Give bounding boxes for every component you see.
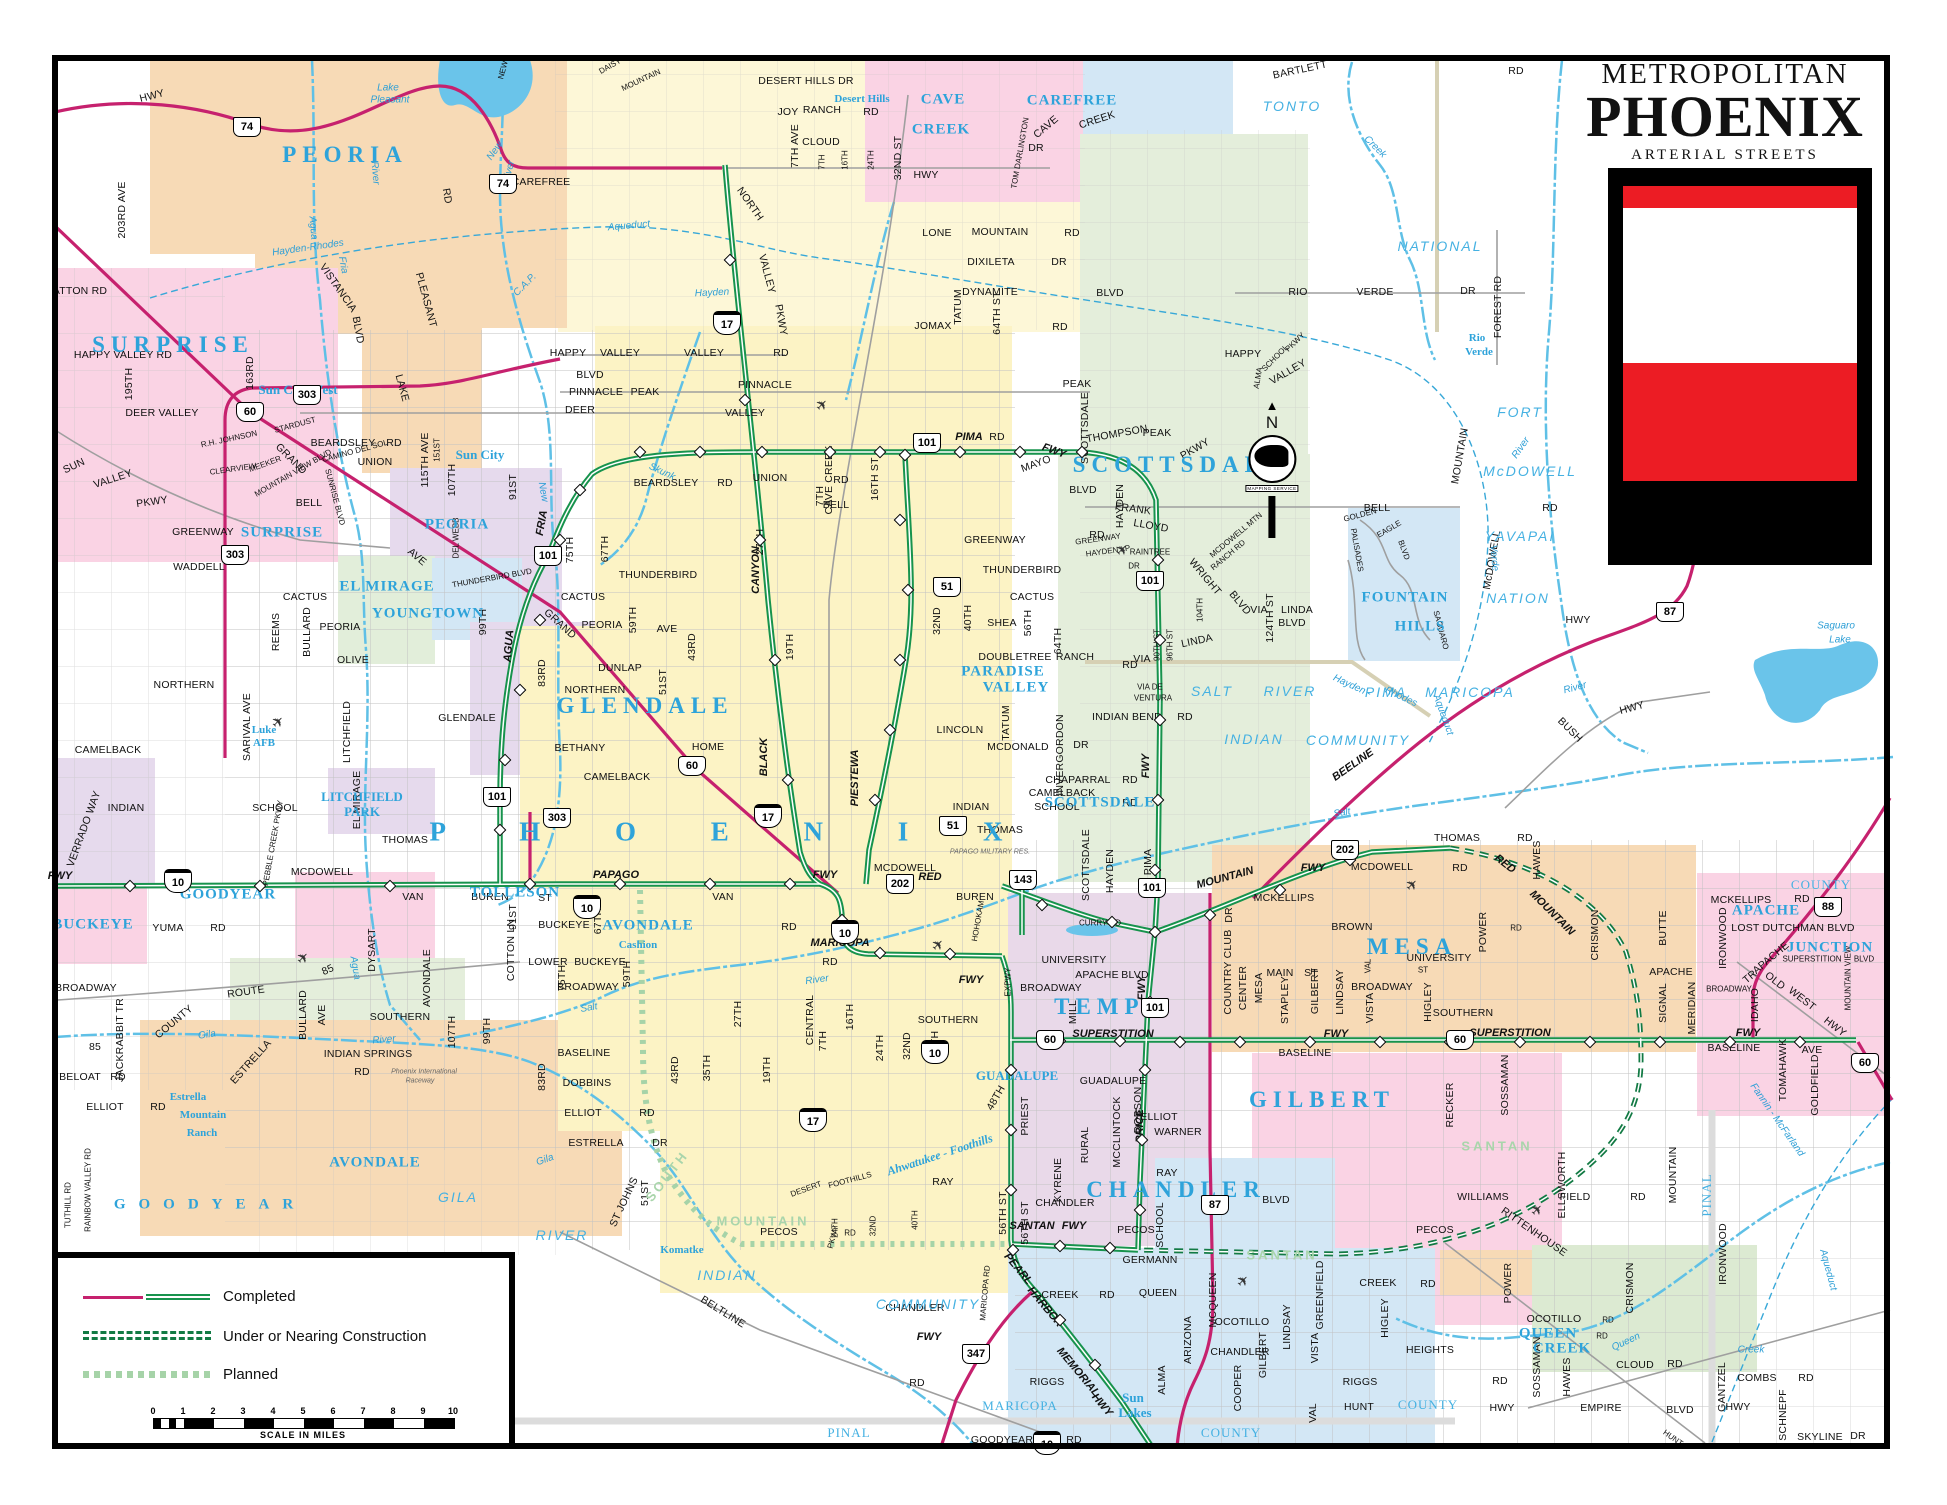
road-label: RD	[354, 1066, 370, 1078]
title-phoenix: PHOENIX	[1560, 91, 1890, 143]
road-label: 56TH	[1022, 610, 1034, 636]
road-label: TUTHILL RD	[64, 1182, 73, 1228]
road-label: 203RD AVE	[116, 181, 128, 238]
road-label: 151ST	[433, 438, 442, 462]
road-label: BLVD	[1069, 484, 1096, 496]
road-label: GILBERT	[1257, 1332, 1269, 1378]
route-shield-17: 17	[754, 804, 782, 828]
scale-tick: 8	[390, 1406, 395, 1416]
road-label: BELL	[296, 497, 323, 509]
road-label: CLOUD	[1616, 1359, 1654, 1371]
road-label: DYNAMITE	[962, 286, 1018, 298]
road-label: MCCLINTOCK	[1111, 1096, 1123, 1167]
road-label: GREENWAY	[172, 526, 234, 538]
road-label: MCQUEEN	[1207, 1272, 1219, 1327]
road-label: HWY	[1565, 614, 1590, 626]
road-label: ARIZONA	[1182, 1316, 1194, 1364]
freeway-label: FWY	[917, 1331, 941, 1343]
route-shield-10: 10	[831, 920, 859, 944]
road-label: Phoenix International	[391, 1069, 457, 1076]
road-label: VALLEY	[600, 347, 640, 359]
road-label: RD	[110, 1071, 126, 1083]
road-label: RD	[863, 106, 879, 118]
route-shield-101: 101	[1141, 998, 1169, 1018]
road-label: RD	[1122, 659, 1138, 671]
road-label: RD	[1177, 711, 1193, 723]
road-label: QUEEN	[1139, 1287, 1177, 1299]
road-label: LOST DUTCHMAN BLVD	[1731, 922, 1854, 934]
city-label: PARK	[344, 804, 380, 820]
road-label: VISTA	[1309, 1333, 1321, 1364]
road-label: BROWN	[1331, 921, 1372, 933]
route-shield-303: 303	[221, 545, 249, 565]
road-label: RD	[1602, 1316, 1614, 1325]
city-label: SCOTTSDALE	[1045, 795, 1156, 812]
road-label: EXPWY	[1004, 968, 1013, 997]
freeway-label: FWY	[1736, 1027, 1760, 1039]
road-label: APACHE	[1649, 966, 1693, 978]
road-label: ELLSWORTH	[1556, 1152, 1568, 1219]
region-label: COUNTY	[1791, 877, 1851, 893]
road-label: HWY	[1725, 1401, 1750, 1413]
road-label: TATUM	[1000, 705, 1012, 741]
scale-tick: 4	[270, 1406, 275, 1416]
road-label: DOUBLETREE	[978, 651, 1051, 663]
road-label: DR	[1460, 285, 1476, 297]
road-label: THUNDERBIRD	[619, 569, 698, 581]
road-label: PINNACLE	[738, 379, 792, 391]
road-label: RD	[1667, 1358, 1683, 1370]
road-label: WILLIAMS	[1457, 1191, 1509, 1203]
road-label: BROADWAY	[1020, 982, 1082, 994]
city-label: Lakes	[1118, 1405, 1151, 1421]
road-label: DUNLAP	[598, 662, 642, 674]
road-label: 16TH	[841, 150, 850, 170]
legend-under-construction-line	[83, 1331, 211, 1340]
road-label: VALLEY	[725, 407, 765, 419]
road-label: 104TH	[1196, 598, 1205, 622]
road-label: RD	[909, 1377, 925, 1389]
city-label: JUNCTION	[1787, 940, 1873, 957]
road-label: SHEA	[987, 617, 1016, 629]
road-label: STAPLEY	[1279, 976, 1291, 1024]
city-label: FOUNTAIN	[1362, 590, 1449, 607]
road-label: BUCKEYE	[574, 956, 626, 968]
road-label: VALLEY	[684, 347, 724, 359]
ad-white-area	[1623, 208, 1857, 363]
region-label: COMMUNITY	[876, 1296, 980, 1312]
city-label: MESA	[1367, 934, 1457, 960]
road-label: CLUB	[1222, 930, 1234, 959]
road-label: OCOTILLO	[1527, 1313, 1582, 1325]
scale-tick: 10	[448, 1406, 458, 1416]
road-label: GREENWAY	[964, 534, 1026, 546]
road-label: ST	[1418, 966, 1428, 975]
road-label: CLOUD	[802, 136, 840, 148]
scale-caption: SCALE IN MILES	[260, 1430, 346, 1440]
route-shield-51: 51	[939, 816, 967, 836]
road-label: DEER	[565, 404, 595, 416]
freeway-label: SUPERSTITION	[1469, 1027, 1550, 1039]
road-label: LINDSAY	[1334, 969, 1346, 1015]
city-label: AVONDALE	[329, 1155, 421, 1172]
scale-tick: 0	[150, 1406, 155, 1416]
road-label: 163RD	[244, 356, 256, 390]
region-label: TONTO	[1263, 98, 1322, 114]
route-shield-303: 303	[293, 385, 321, 405]
road-label: SCHOOL	[1154, 1202, 1166, 1248]
city-label: Cashion	[619, 939, 658, 951]
road-label: DR	[1223, 907, 1235, 923]
road-label: REEMS	[270, 613, 282, 651]
road-label: PINNACLE	[569, 386, 623, 398]
road-label: THOMAS	[382, 834, 428, 846]
road-label: VERDE	[1356, 286, 1393, 298]
city-label: Mountain	[180, 1109, 226, 1121]
freeway-label: RED	[918, 871, 941, 883]
road-label: 27TH	[732, 1001, 744, 1027]
road-label: 43RD	[686, 633, 698, 661]
title-subtitle: ARTERIAL STREETS	[1560, 147, 1890, 164]
road-label: 56TH ST	[997, 1191, 1009, 1234]
road-label: 32ND	[901, 1032, 913, 1060]
road-label: 64TH	[1052, 628, 1064, 654]
road-label: WADDELL	[173, 561, 225, 573]
freeway-label: FWY	[1324, 1028, 1348, 1040]
legend-under-construction-label: Under or Nearing Construction	[223, 1328, 426, 1345]
road-label: AVONDALE	[421, 949, 433, 1007]
road-label: BUREN	[956, 891, 994, 903]
scale-tick: 9	[420, 1406, 425, 1416]
road-label: NORTHERN	[154, 679, 215, 691]
road-label: 7TH	[817, 1031, 829, 1051]
road-label: DEER VALLEY	[125, 407, 198, 419]
road-label: CACTUS	[283, 591, 327, 603]
road-label: BROADWAY	[1351, 981, 1413, 993]
road-label: ELLIOT	[86, 1101, 123, 1113]
route-shield-10: 10	[1033, 1431, 1061, 1455]
road-label: HWY	[1489, 1402, 1514, 1414]
scale-tick: 6	[330, 1406, 335, 1416]
road-label: GERMANN	[1122, 1254, 1177, 1266]
road-label: HEIGHTS	[1406, 1344, 1454, 1356]
road-label: RAY	[932, 1176, 953, 1188]
road-label: UNION	[753, 472, 788, 484]
road-label: 107TH	[446, 1016, 458, 1049]
road-label: DR	[1073, 739, 1089, 751]
road-label: HAWES	[1531, 840, 1543, 879]
freeway-label: BLACK	[758, 738, 770, 777]
road-label: DR	[652, 1137, 668, 1149]
road-label: BULLARD	[297, 990, 309, 1040]
road-label: CAMELBACK	[75, 744, 142, 756]
road-label: HAWES	[1561, 1357, 1573, 1396]
road-label: DIXILETA	[967, 256, 1015, 268]
road-label: CRISMON	[1624, 1263, 1636, 1314]
road-label: PECOS	[1416, 1224, 1454, 1236]
road-label: IRONWOOD	[1717, 907, 1729, 969]
freeway-label: PIMA	[955, 431, 983, 443]
road-label: DESERT HILLS DR	[758, 75, 853, 87]
road-label: RD	[1052, 321, 1068, 333]
road-label: RAINTREE	[1130, 548, 1170, 557]
road-label: RD	[781, 921, 797, 933]
water-label: Lake	[1829, 635, 1851, 646]
city-label: HILLS	[1395, 619, 1446, 636]
route-shield-60: 60	[1036, 1030, 1064, 1050]
road-label: BLVD	[1278, 617, 1305, 629]
city-label: BUCKEYE	[52, 917, 133, 934]
region-label: SALT	[1191, 683, 1233, 699]
road-label: RD	[440, 187, 455, 204]
city-label: LITCHFIELD	[321, 789, 403, 805]
freeway-label: FWY	[813, 869, 837, 881]
route-shield-303: 303	[543, 808, 571, 828]
road-label: RD	[989, 431, 1005, 443]
road-label: LITCHFIELD	[341, 701, 353, 763]
city-label: VALLEY	[983, 680, 1050, 697]
road-label: HIGLEY	[1422, 982, 1434, 1022]
route-shield-10: 10	[921, 1040, 949, 1064]
region-label: MARICOPA	[982, 1398, 1057, 1414]
route-shield-60: 60	[1851, 1053, 1879, 1073]
road-label: THUNDERBIRD	[983, 564, 1062, 576]
city-label: SURPRISE	[241, 525, 323, 542]
road-label: SCHNEPF	[1777, 1389, 1789, 1441]
road-label: YUMA	[152, 922, 183, 934]
road-label: HAYDEN	[1104, 849, 1116, 893]
region-label: RIVER	[1264, 683, 1317, 699]
road-label: RD	[1064, 227, 1080, 239]
road-label: MOUNTAIN	[972, 226, 1029, 238]
road-label: EMPIRE	[1580, 1402, 1621, 1414]
region-label: YAVAPAI	[1485, 528, 1556, 544]
road-label: DR	[1850, 1430, 1866, 1442]
road-label: MCDOWELL	[1351, 861, 1413, 873]
scale-tick: 5	[300, 1406, 305, 1416]
road-label: VIA DE	[1137, 683, 1163, 692]
road-label: 24TH	[867, 150, 876, 170]
road-label: AVE	[657, 623, 678, 635]
road-label: RIO	[1288, 286, 1307, 298]
road-label: 195TH	[123, 368, 135, 401]
road-label: 43RD	[669, 1056, 681, 1084]
road-label: CENTRAL	[804, 995, 816, 1045]
city-label: Sun	[1122, 1390, 1144, 1406]
road-label: 83RD	[536, 1063, 548, 1091]
road-label: VAN	[402, 891, 423, 903]
road-label: RD	[833, 474, 849, 486]
route-shield-74: 74	[489, 174, 517, 194]
ad-placeholder-block	[1608, 168, 1872, 565]
road-label: 51ST	[657, 669, 669, 695]
city-label: CAREFREE	[1027, 93, 1118, 110]
road-label: 16TH	[844, 1004, 856, 1030]
legend-planned-line	[83, 1371, 211, 1378]
road-label: INDIAN SPRINGS	[324, 1048, 413, 1060]
road-label: JOMAX	[914, 320, 951, 332]
water-label: Creek	[1738, 1345, 1765, 1356]
freeway-label: FWY	[1301, 862, 1325, 874]
city-label: Komatke	[660, 1244, 703, 1256]
road-label: RIGGS	[1343, 1376, 1378, 1388]
road-label: 75TH	[564, 537, 576, 563]
road-label: RURAL	[1079, 1127, 1091, 1164]
road-label: IRONWOOD	[1717, 1223, 1729, 1285]
road-label: 35TH	[701, 1055, 713, 1081]
road-label: INDIAN BEND	[1092, 711, 1162, 723]
freeway-label: PIESTEWA	[849, 750, 861, 807]
road-label: SIGNAL	[1657, 983, 1669, 1023]
road-label: RD	[150, 1101, 166, 1113]
road-label: GILBERT	[1309, 968, 1321, 1014]
road-label: RD	[1596, 1332, 1608, 1341]
road-label: SOUTHERN	[370, 1011, 431, 1023]
road-label: VENTURA	[1134, 694, 1172, 703]
route-shield-101: 101	[483, 787, 511, 807]
city-label: Desert Hills	[834, 93, 889, 105]
road-label: 7TH	[818, 154, 827, 169]
city-label: GUADALUPE	[976, 1068, 1058, 1084]
road-label: 7TH	[814, 486, 826, 506]
road-label: HAYDEN	[1114, 484, 1126, 528]
region-label: INDIAN	[697, 1267, 756, 1283]
road-label: BLVD	[576, 369, 603, 381]
road-label: RIGGS	[1030, 1376, 1065, 1388]
city-label: Verde	[1465, 346, 1493, 358]
road-label: INDIAN	[108, 802, 145, 814]
city-label: CREEK	[1533, 1341, 1591, 1358]
road-label: LINDA	[1281, 604, 1313, 616]
ad-red-area	[1623, 363, 1857, 481]
road-label: CACTUS	[561, 591, 605, 603]
road-label: RD	[844, 1229, 856, 1238]
road-label: 24TH	[831, 1218, 840, 1238]
region-label: COUNTY	[1398, 1397, 1458, 1413]
water-label: Saguaro	[1817, 621, 1855, 632]
road-label: RD	[1492, 1375, 1508, 1387]
phoenix-mapping-service-logo-icon	[1248, 435, 1296, 483]
region-label: FORT	[1497, 404, 1543, 420]
road-label: THOMAS	[1434, 832, 1480, 844]
road-label: BLVD	[1096, 287, 1123, 299]
ad-red-stripe	[1623, 186, 1857, 208]
route-shield-101: 101	[534, 546, 562, 566]
road-label: RD	[639, 1107, 655, 1119]
compass-bar	[1269, 496, 1276, 538]
route-shield-10: 10	[164, 869, 192, 893]
city-label: EL MIRAGE	[339, 579, 434, 596]
road-label: 124TH ST	[1264, 593, 1276, 642]
road-label: 19TH	[761, 1057, 773, 1083]
road-label: TOMAHAWK	[1777, 1039, 1789, 1102]
legend-completed-green-line	[146, 1294, 210, 1300]
road-label: BLVD	[1666, 1404, 1693, 1416]
road-label: PEAK	[631, 386, 660, 398]
water-label: River	[369, 161, 382, 185]
road-label: 24TH	[874, 1035, 886, 1061]
road-label: BASELINE	[1279, 1047, 1332, 1059]
road-label: HOME	[692, 741, 724, 753]
road-label: GLENDALE	[438, 712, 496, 724]
city-label: Rio	[1469, 332, 1486, 344]
road-label: CACTUS	[1010, 591, 1054, 603]
road-label: LONE	[922, 227, 951, 239]
freeway-label: CANYON	[750, 546, 762, 594]
road-label: HWY	[913, 169, 938, 181]
freeway-label: SUPERSTITION	[1072, 1028, 1153, 1040]
road-label: SKYLINE	[1797, 1431, 1843, 1443]
water-label: Pleasant	[371, 95, 410, 106]
road-label: CRISMON	[1589, 910, 1601, 961]
road-label: Raceway	[406, 1078, 435, 1085]
road-label: PEORIA	[320, 621, 361, 633]
city-label: Estrella	[170, 1091, 206, 1103]
road-label: CENTER	[1237, 966, 1249, 1010]
road-label: PEAK	[1143, 427, 1172, 439]
road-label: CAMELBACK	[584, 771, 651, 783]
water-label: Agua	[307, 216, 320, 240]
road-label: PEAK	[1063, 378, 1092, 390]
route-shield-60: 60	[236, 402, 264, 422]
route-shield-87: 87	[1656, 602, 1684, 622]
city-label: CREEK	[912, 122, 970, 139]
road-label: 32ND	[931, 607, 943, 635]
road-label: MCDOWELL	[291, 866, 353, 878]
water-label: Hayden	[695, 287, 730, 300]
road-label: PECOS	[1117, 1224, 1155, 1236]
route-shield-347: 347	[962, 1344, 990, 1364]
road-label: 91ST	[507, 474, 519, 500]
road-label: INVERGORDON	[1054, 714, 1066, 796]
corridor-label: SANTAN	[1461, 1139, 1532, 1154]
road-label: HUNT	[1344, 1401, 1374, 1413]
road-label: OCOTILLO	[1215, 1316, 1270, 1328]
road-label: 59TH	[627, 607, 639, 633]
road-label: BROADWAY	[1706, 985, 1752, 994]
road-label: RD	[822, 956, 838, 968]
road-label: KYRENE	[1052, 1158, 1064, 1202]
region-label: RIVER	[536, 1227, 589, 1243]
road-label: ESTRELLA	[568, 1137, 623, 1149]
road-label: BUCKEYE	[538, 919, 590, 931]
road-label: RD	[1099, 1289, 1115, 1301]
road-label: GOLDFIELD	[1809, 1054, 1821, 1115]
road-label: SOUTHERN	[1433, 1007, 1494, 1019]
freeway-label: FWY	[48, 870, 72, 882]
road-label: 16TH ST	[869, 457, 881, 500]
road-label: ELLIOT	[564, 1107, 601, 1119]
road-label: VAL	[1307, 1403, 1319, 1423]
freeway-label: FWY	[1140, 754, 1152, 778]
road-label: DR	[1128, 562, 1140, 571]
region-label: COUNTY	[1201, 1425, 1261, 1441]
route-shield-17: 17	[713, 311, 741, 335]
scale-tick: 2	[210, 1406, 215, 1416]
scale-tick: 1	[180, 1406, 185, 1416]
road-label: MESA	[1253, 973, 1265, 1004]
road-label: PEORIA	[582, 619, 623, 631]
city-label: AFB	[253, 737, 275, 749]
route-shield-202: 202	[886, 874, 914, 894]
road-label: BLVD	[1262, 1194, 1289, 1206]
road-label: POWER	[1477, 912, 1489, 953]
route-shield-60: 60	[1446, 1030, 1474, 1050]
road-label: 107TH	[446, 464, 458, 497]
scale-tick: 7	[360, 1406, 365, 1416]
road-label: JACKRABBIT TR	[114, 998, 126, 1082]
region-label: McDOWELL	[1483, 463, 1577, 479]
